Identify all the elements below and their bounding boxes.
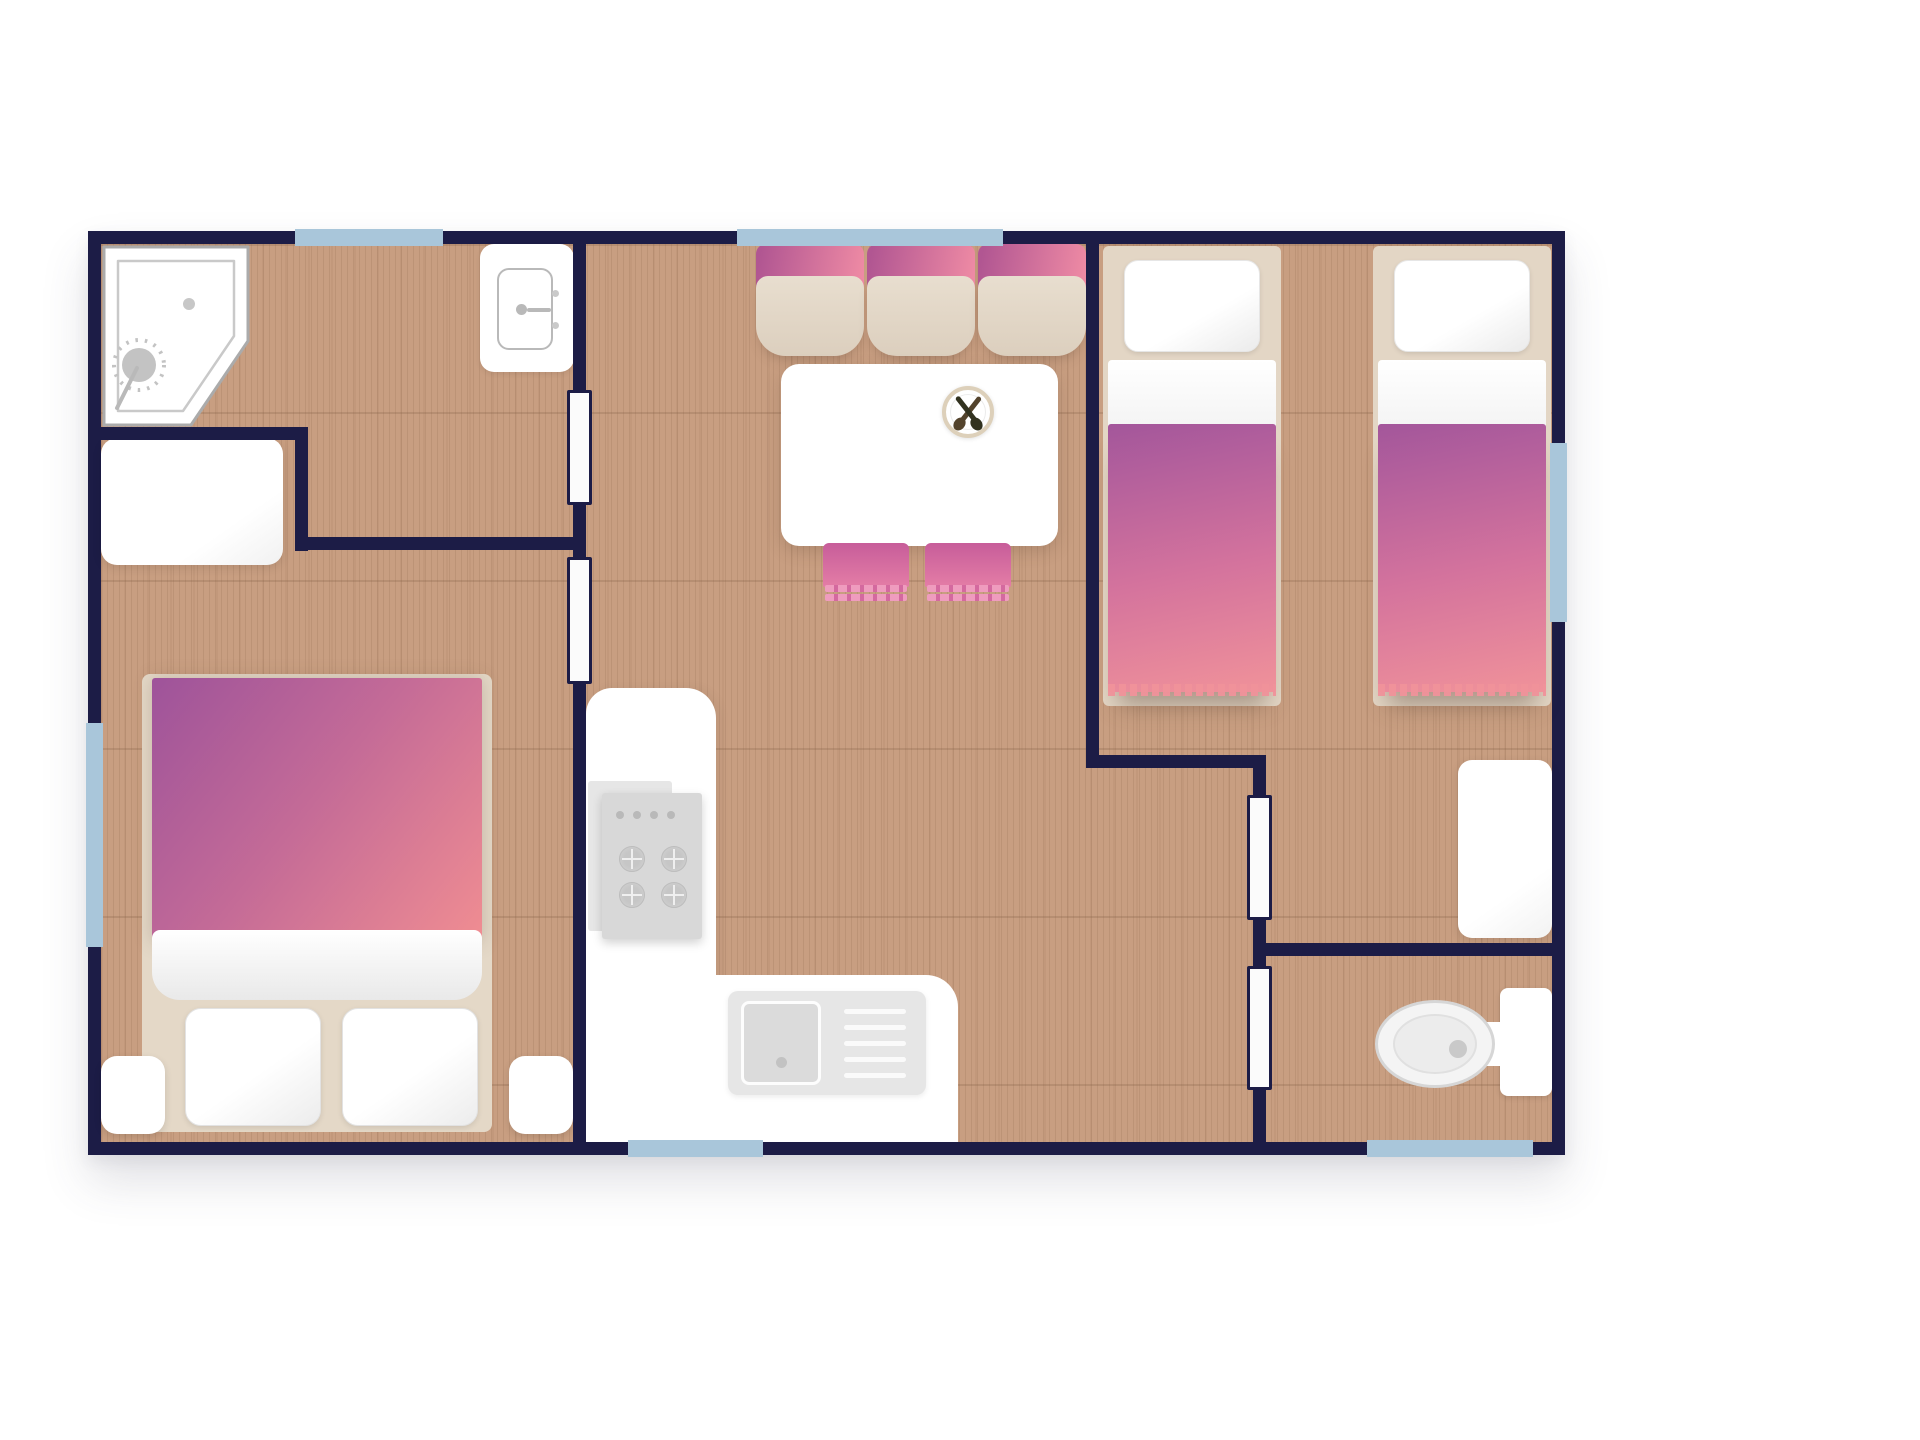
openings-layer (101, 244, 1552, 1142)
window-top-center (737, 229, 1003, 246)
window-right-twin (1550, 443, 1567, 622)
door-twin-bedroom (1247, 795, 1272, 920)
floor-plan (88, 231, 1565, 1155)
window-left-master (86, 723, 103, 947)
floor-plan-canvas (0, 0, 1920, 1440)
door-master-bedroom (567, 557, 592, 684)
door-wc (1247, 966, 1272, 1090)
window-top-left (295, 229, 443, 246)
entry-door-glazed (628, 1140, 763, 1157)
door-bathroom (567, 390, 592, 505)
window-bottom-wc (1367, 1140, 1533, 1157)
